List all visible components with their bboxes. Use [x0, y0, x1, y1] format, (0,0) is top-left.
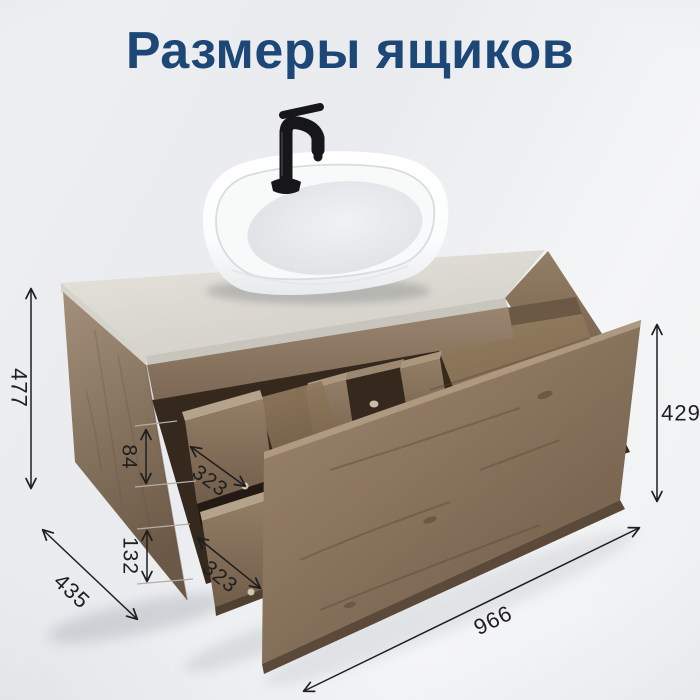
- dim-label-bottom-drawer-inner-height: 132: [119, 537, 142, 575]
- dim-label-drawer-front-height: 429: [661, 401, 700, 426]
- dim-label-cabinet-height: 477: [7, 368, 32, 408]
- vanity-figure: 477 84 132 323 323: [0, 0, 700, 700]
- dim-drawer-front-height: 429: [657, 325, 700, 501]
- product-dimensions-page: Размеры ящиков: [0, 0, 700, 700]
- dim-label-top-drawer-inner-height: 84: [118, 444, 141, 469]
- dim-label-cabinet-depth: 435: [49, 568, 95, 613]
- dim-cabinet-height: 477: [7, 289, 32, 488]
- faucet-lever: [283, 107, 320, 115]
